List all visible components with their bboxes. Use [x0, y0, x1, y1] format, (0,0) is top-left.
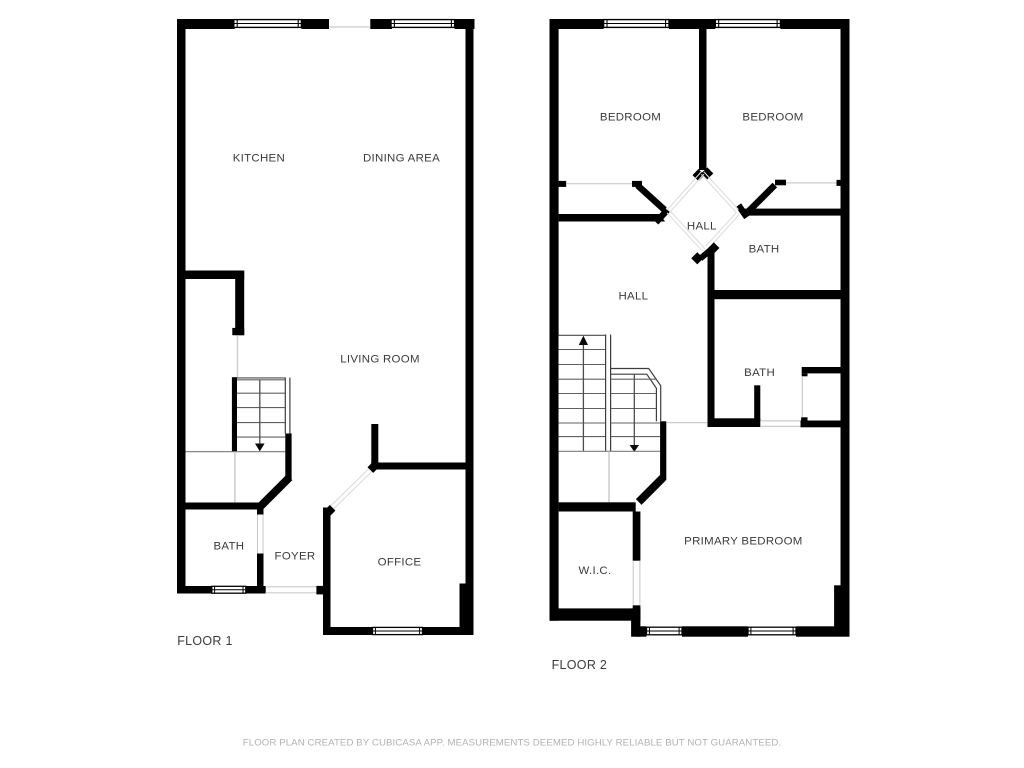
svg-text:BATH: BATH	[749, 243, 780, 255]
svg-text:BATH: BATH	[213, 540, 244, 552]
svg-text:BATH: BATH	[744, 367, 775, 379]
svg-text:KITCHEN: KITCHEN	[233, 152, 285, 164]
svg-text:FLOOR PLAN CREATED BY CUBICASA: FLOOR PLAN CREATED BY CUBICASA APP. MEAS…	[243, 737, 781, 748]
svg-text:OFFICE: OFFICE	[378, 556, 422, 568]
svg-text:BEDROOM: BEDROOM	[742, 112, 803, 124]
svg-text:DINING AREA: DINING AREA	[363, 152, 440, 164]
svg-text:FLOOR 1: FLOOR 1	[177, 634, 233, 648]
svg-text:BEDROOM: BEDROOM	[600, 111, 661, 123]
svg-text:FOYER: FOYER	[275, 550, 316, 562]
svg-text:LIVING ROOM: LIVING ROOM	[340, 353, 420, 365]
svg-text:W.I.C.: W.I.C.	[579, 565, 612, 577]
svg-text:PRIMARY BEDROOM: PRIMARY BEDROOM	[684, 536, 802, 548]
svg-text:HALL: HALL	[687, 221, 717, 233]
svg-text:FLOOR 2: FLOOR 2	[552, 658, 608, 672]
svg-text:HALL: HALL	[618, 290, 648, 302]
